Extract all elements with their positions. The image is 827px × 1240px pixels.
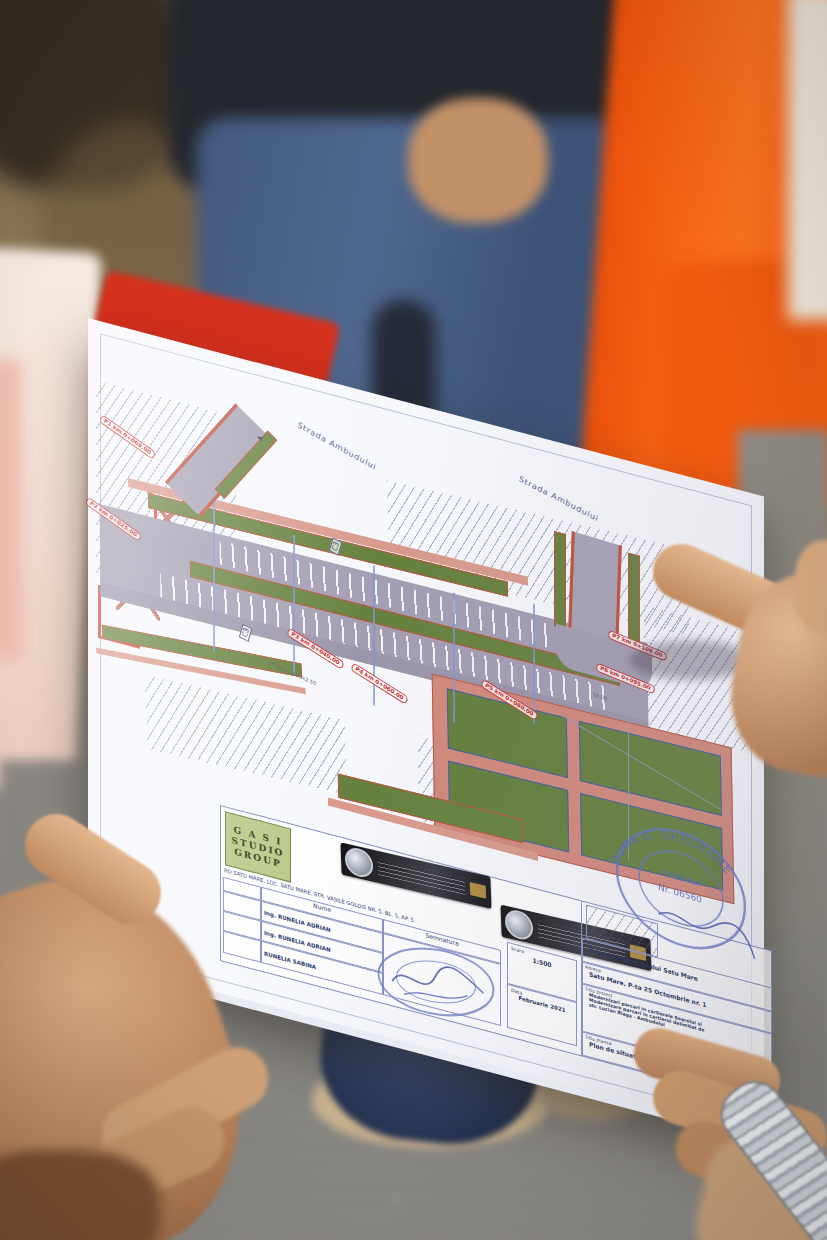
gold-chip-icon: [470, 881, 486, 898]
white-stripe: [788, 0, 827, 320]
company-round-stamp: [366, 938, 507, 1026]
section-line: [533, 604, 535, 724]
left-wrist-shadow: [0, 1150, 160, 1240]
section-line: [453, 592, 455, 722]
right-road-verge-right: [628, 553, 640, 651]
finger-shadow-on-paper: [630, 640, 750, 680]
person-hand-in-pocket: [408, 98, 548, 223]
photo-scene: Strada Ambudului Strada Ambudului ➤ P1 k…: [0, 0, 827, 1240]
left-sliver-pink-edge: [0, 360, 22, 660]
silver-seal-icon: [345, 845, 374, 880]
section-line: [213, 501, 215, 651]
section-line: [293, 534, 295, 674]
stamp-signature: [658, 896, 759, 959]
right-road-verge-left: [554, 531, 566, 629]
silver-seal-icon: [505, 908, 534, 943]
